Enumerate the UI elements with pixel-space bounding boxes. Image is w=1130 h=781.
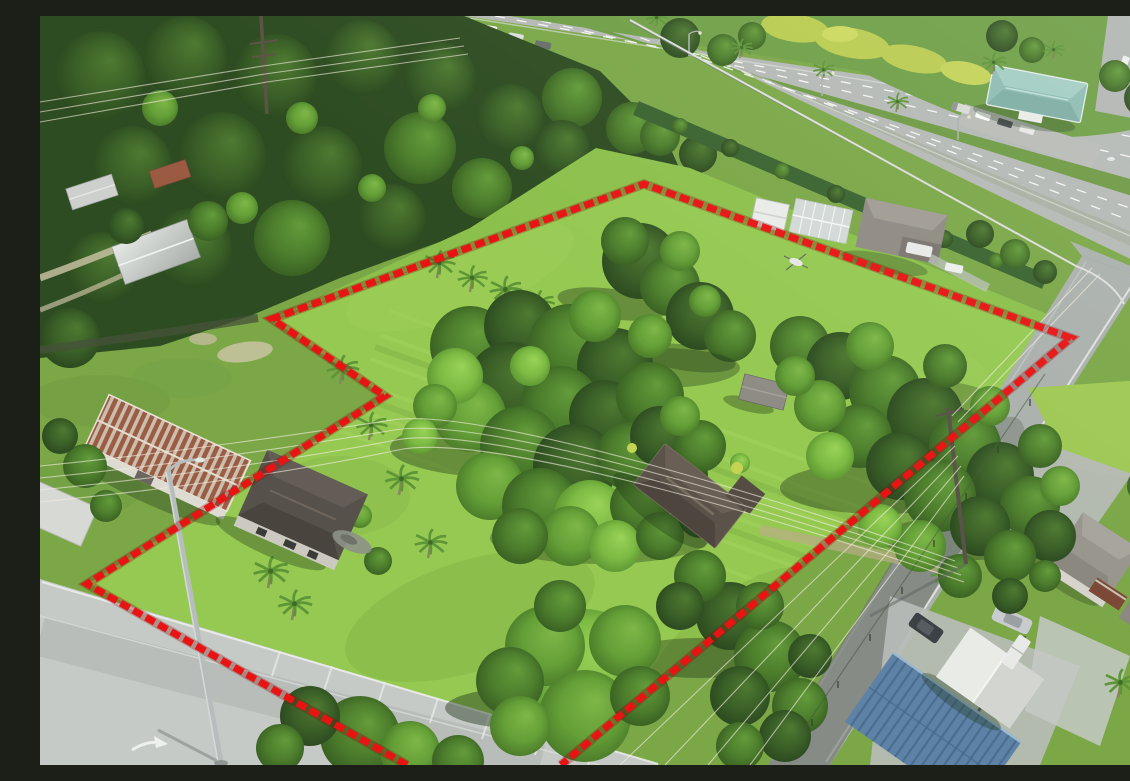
aerial-photo (40, 16, 1130, 765)
aerial-photo-canvas (40, 16, 1130, 765)
sunlight-haze (40, 16, 1130, 765)
